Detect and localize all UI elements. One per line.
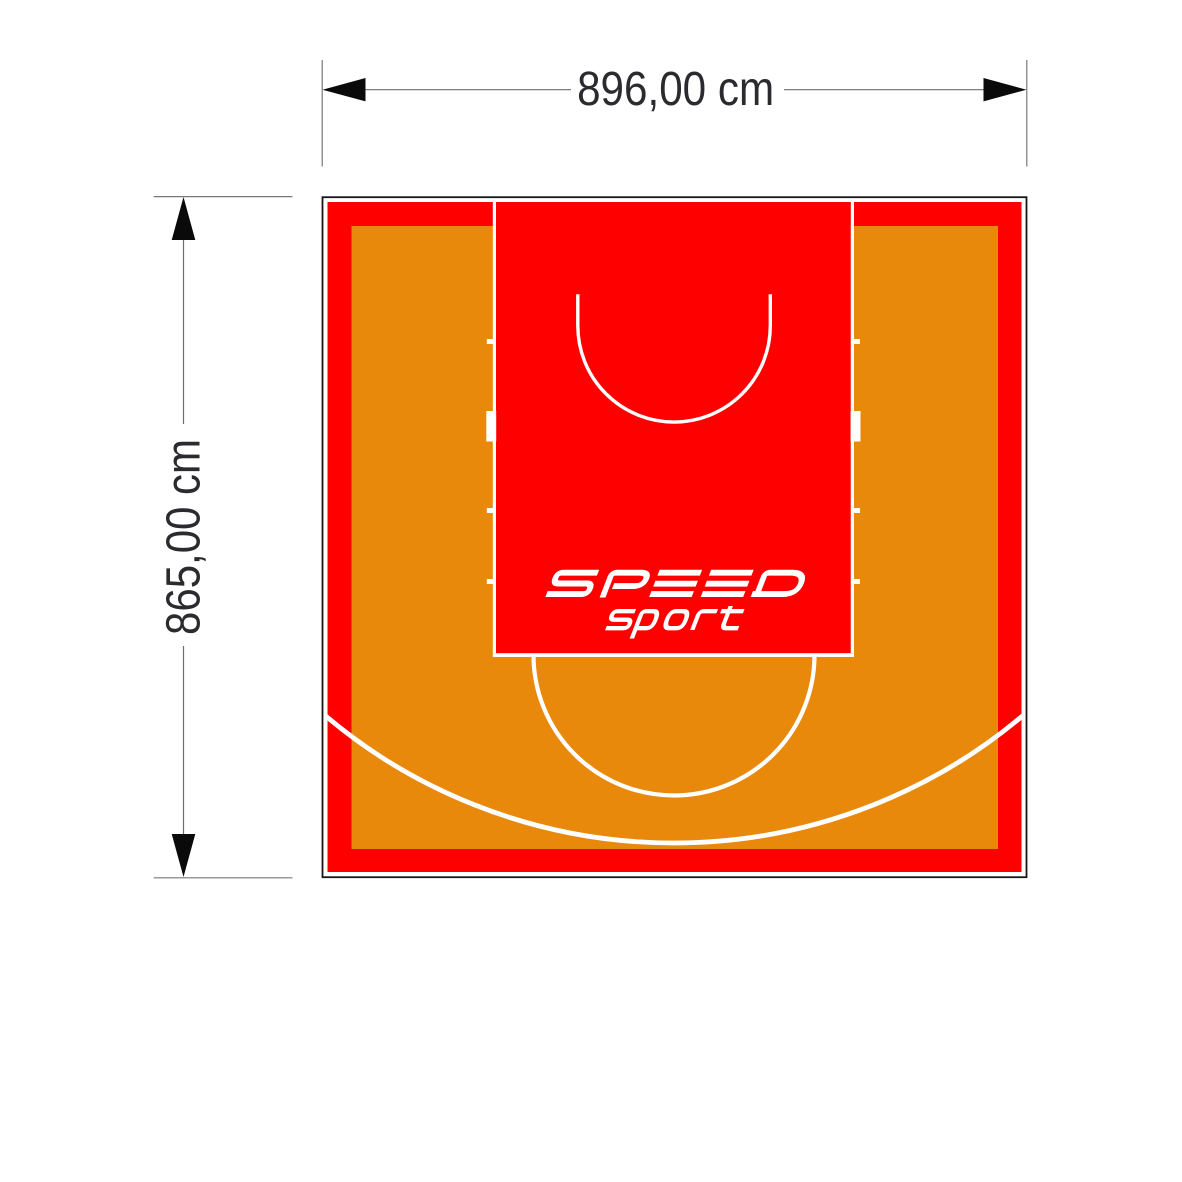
svg-text:865,00 cm: 865,00 cm [157,439,211,635]
svg-text:896,00 cm: 896,00 cm [577,62,774,116]
